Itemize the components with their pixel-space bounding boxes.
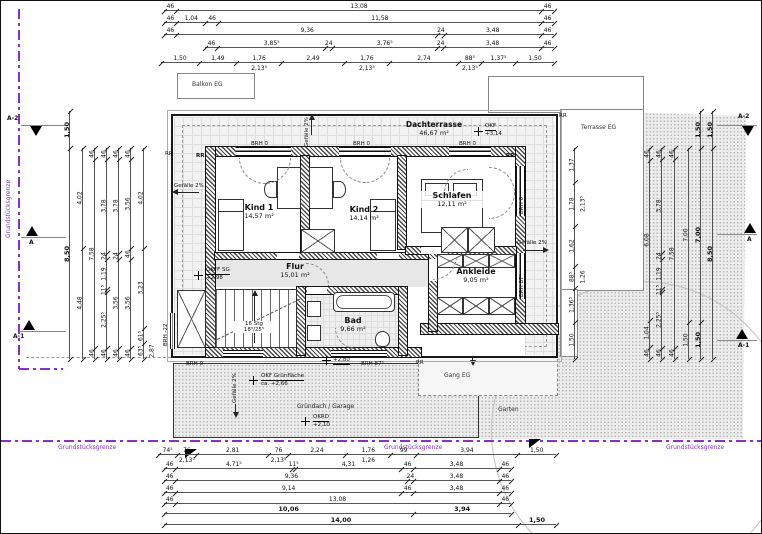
dim-tick <box>161 511 167 517</box>
wardrobe <box>437 297 463 315</box>
dim-tick <box>80 245 86 251</box>
dim-tick <box>174 32 180 38</box>
dim-tick <box>158 60 164 66</box>
dim-tick <box>155 452 161 458</box>
dim-label: 46 <box>644 349 651 357</box>
room-name: Kind 2 <box>331 205 397 214</box>
dim-label: 61⁵ <box>138 331 145 341</box>
dim-label: 1,50 <box>694 332 702 348</box>
dim-label: 46 <box>501 485 509 492</box>
wall <box>421 324 558 334</box>
level-value: ca. +2,66 <box>261 381 288 387</box>
dim-label: 46 <box>166 473 174 480</box>
dim-label: 1,04 <box>185 15 198 22</box>
section-line <box>19 331 66 332</box>
window <box>449 147 491 156</box>
dim-tick <box>414 452 420 458</box>
dachterrasse-name: Dachterrasse <box>399 120 469 129</box>
dim-tick <box>411 511 417 517</box>
dimension-row: 464,71⁵11⁵4,31463,4846 <box>164 468 511 469</box>
slope-arrow-line <box>523 250 543 251</box>
dim-label: 4,02 <box>138 191 145 204</box>
dim-tick <box>104 157 110 163</box>
dim-label: 2,13⁵ <box>179 457 195 464</box>
dim-label: 4,71⁵ <box>226 461 242 468</box>
dim-label: 3,48 <box>450 485 463 492</box>
terrasse-eg-area <box>488 76 644 113</box>
dimension-row: 1,501,491,762,13⁵2,491,762,13⁵2,7488⁵2,1… <box>161 62 554 63</box>
section-label-a2: A-2 <box>738 113 749 120</box>
brh-label: BRH 0 <box>251 141 268 147</box>
dim-tick <box>456 60 462 66</box>
dim-tick <box>551 20 557 26</box>
dim-tick <box>128 357 134 363</box>
dim-label: 24 <box>437 40 445 47</box>
dim-label: 9,36 <box>285 473 298 480</box>
room-label-kind2: Kind 2 14,14 m² <box>331 205 397 222</box>
dim-tick <box>104 357 110 363</box>
dim-tick <box>215 45 221 51</box>
dim-label: 46 <box>167 15 175 22</box>
level-label: OKRD <box>313 414 329 422</box>
brh-label: BRH 87⁵ <box>519 274 525 297</box>
closet <box>177 290 206 348</box>
section-label-a1: A-1 <box>13 333 24 340</box>
room-area: 9,66 m² <box>331 325 375 333</box>
dim-tick <box>141 146 147 152</box>
dimension-row: 4613,0846 <box>164 10 554 11</box>
room-label-ankleide: Ankleide 9,05 m² <box>438 267 514 284</box>
dim-tick <box>551 32 557 38</box>
door-gap <box>277 253 299 259</box>
dim-label: 3,78 <box>113 200 120 213</box>
dim-label: 8,50 <box>706 246 714 262</box>
room-name: Flur <box>266 262 324 271</box>
room-area: 14,57 m² <box>219 212 299 220</box>
slope-label: Gefälle 2% <box>174 183 204 189</box>
dim-label: 6,08 <box>644 233 651 246</box>
bathtub-inner <box>336 295 392 309</box>
dim-tick <box>343 452 349 458</box>
dim-tick <box>92 357 98 363</box>
dimension-row: 461,044611,5846 <box>164 22 554 23</box>
rr-label: RR <box>559 113 567 119</box>
dim-label: 46 <box>166 496 174 503</box>
dim-label: 46 <box>656 150 663 158</box>
wall <box>398 156 406 249</box>
dim-label: 1,19 <box>101 267 108 280</box>
dimension-chain: 4,024,48 <box>82 148 83 359</box>
dimension-chain: 463,56463,5646 <box>130 148 131 359</box>
dim-label: 46 <box>501 461 509 468</box>
dim-tick <box>80 146 86 152</box>
dim-label: 1,78 <box>569 197 576 210</box>
slope-left-arrow-icon <box>172 189 178 195</box>
property-line-left-stub <box>19 368 63 370</box>
dim-label: 46 <box>167 27 175 34</box>
dim-label: 3,23 <box>138 281 145 294</box>
dim-label: 46 <box>544 15 552 22</box>
wardrobe <box>489 297 515 315</box>
dim-label: 1,50 <box>529 516 545 524</box>
level-value: +2,80 <box>333 357 350 365</box>
dim-label: 24 <box>101 252 108 260</box>
dim-label: 3,94 <box>454 505 470 513</box>
dim-label: 1,49 <box>211 55 224 62</box>
section-label-a2: A-2 <box>7 115 18 122</box>
section-label-a: A <box>747 236 752 243</box>
brh-label: BRH 0 <box>459 141 476 147</box>
dim-label: 3,56 <box>125 297 132 310</box>
dim-label: 2,87 <box>149 344 156 357</box>
dim-label: 1,26 <box>362 457 375 464</box>
dim-label: 3,56 <box>125 197 132 210</box>
dim-label: 11⁵ <box>289 461 299 468</box>
slope-label: Gefälle 2% <box>517 240 547 246</box>
dim-tick <box>67 357 73 363</box>
dim-tick <box>515 522 521 528</box>
room-name: Schlafen <box>419 191 485 200</box>
dim-label: 3,78 <box>101 200 108 213</box>
rr-label: RR <box>506 153 514 159</box>
dim-label: 1,50 <box>569 334 576 347</box>
dim-tick <box>710 109 716 115</box>
dim-label: 1,76 <box>360 55 373 62</box>
dimension-row: 74⁵762,13⁵2,81762,13⁵2,241,761,26993,941… <box>158 454 556 455</box>
level-okrd: OKRD +2,10 <box>313 414 330 428</box>
dimension-chain: 467,5846 <box>674 148 675 359</box>
room-label-bad: Bad 9,66 m² <box>331 316 375 333</box>
dim-label: 46 <box>544 40 552 47</box>
room-label-schlafen: Schlafen 12,11 m² <box>419 191 485 208</box>
dim-label: 10,06 <box>278 505 299 513</box>
dim-label: 24 <box>437 27 445 34</box>
dimension-chain: 7,001,50 <box>688 148 689 359</box>
dim-tick <box>388 452 394 458</box>
toilet <box>375 331 390 347</box>
section-label-a: A <box>29 239 34 246</box>
dim-label: 99 <box>400 447 408 454</box>
dim-tick <box>698 109 704 115</box>
level-label: OKF <box>485 123 496 131</box>
level-marker-icon <box>474 127 483 136</box>
slope-down-arrow-icon <box>233 412 239 418</box>
dim-label: 7,58 <box>669 247 676 260</box>
dim-label: 1,50 <box>683 334 690 347</box>
brh-label: BRH -22 <box>163 324 169 346</box>
dim-label: 14,00 <box>331 516 352 524</box>
wall <box>206 147 215 356</box>
room-name: Kind 1 <box>219 203 299 212</box>
slope-up-arrow-icon <box>309 114 315 120</box>
dimension-chain: 1,507,001,50 <box>700 111 701 359</box>
brh-label: BRH 0 <box>186 361 203 367</box>
room-area: 14,14 m² <box>331 214 397 222</box>
room-area: 15,01 m² <box>266 271 324 279</box>
room-name: Bad <box>331 316 375 325</box>
level-marker-icon <box>194 271 203 280</box>
brh-label: BRH 87⁵ <box>361 361 384 367</box>
dim-label: 7,00 <box>683 228 690 241</box>
level-value: +2,10 <box>313 422 330 428</box>
dim-label: 46 <box>656 349 663 357</box>
dim-tick <box>128 157 134 163</box>
dim-tick <box>141 357 147 363</box>
section-arrow-icon <box>30 126 42 136</box>
rr-label: RR <box>165 151 173 157</box>
level-value: +3,14 <box>485 131 502 137</box>
wall <box>297 287 305 355</box>
dim-label: 46 <box>669 349 676 357</box>
dim-label: 11⁵ <box>656 285 663 295</box>
dim-label: 46 <box>89 150 96 158</box>
terrasse-eg-label: Terrasse EG <box>581 124 616 131</box>
dim-label: 1,04 <box>644 327 651 340</box>
dimension-row: 469,36243,4846 <box>164 34 554 35</box>
dim-label: 46 <box>501 473 509 480</box>
section-line <box>21 237 66 238</box>
dim-label: 4,02 <box>77 191 84 204</box>
dimension-chain: 1,371,782,13⁵1,6288⁵1,261,36⁵1,50 <box>574 148 575 359</box>
dim-label: 2,13⁵ <box>251 65 267 72</box>
dimension-row: 10,063,94 <box>164 513 511 514</box>
door-gap <box>307 287 327 294</box>
gang-eg-label: Gang EG <box>444 372 470 379</box>
dim-label: 24 <box>656 252 663 260</box>
dim-label: 76 <box>183 447 191 454</box>
dim-label: 4,48 <box>77 297 84 310</box>
room-label-kind1: Kind 1 14,57 m² <box>219 203 299 220</box>
stairs-label: 16 Stg 18⁵/25⁵ <box>233 321 275 333</box>
dim-tick <box>141 245 147 251</box>
brh-label: BRH 0 <box>519 197 525 214</box>
dim-label: 2,13⁵ <box>271 457 287 464</box>
dim-label: 7,58 <box>89 247 96 260</box>
dim-label: 2,74 <box>417 55 430 62</box>
dachterrasse-area: 46,67 m² <box>399 129 469 137</box>
dim-label: 2,81 <box>226 447 239 454</box>
dim-label: 46 <box>166 485 174 492</box>
room-label-flur: Flur 15,01 m² <box>266 262 324 279</box>
dim-label: 46 <box>113 349 120 357</box>
dim-label: 1,76 <box>362 447 375 454</box>
dim-tick <box>216 20 222 26</box>
stairs-up-arrow-icon <box>252 290 258 296</box>
dimension-chain: 467,5846 <box>94 148 95 359</box>
dimension-row: 469,36243,4846 <box>164 480 511 481</box>
dim-label: 46 <box>404 485 412 492</box>
dim-tick <box>386 60 392 66</box>
dim-label: 24 <box>113 252 120 260</box>
dimension-chain: 466,081,0446 <box>649 148 650 359</box>
dim-label: 46 <box>166 461 174 468</box>
level-marker-icon <box>322 356 331 365</box>
rr-label: RR <box>196 153 204 159</box>
dim-label: 1,36⁵ <box>569 297 576 313</box>
door-gap <box>377 253 399 259</box>
dim-label: 46 <box>208 40 216 47</box>
dim-label: 2,25⁵ <box>101 312 108 328</box>
dimension-chain: 1,508,50 <box>712 111 713 359</box>
dim-label: 3,48 <box>486 40 499 47</box>
dim-label: 13,08 <box>329 496 346 503</box>
dim-label: 24 <box>325 40 333 47</box>
rr-label: RR <box>416 360 424 366</box>
gruendach-label: Gründach / Garage <box>297 403 354 410</box>
property-line-label: Grundstücksgrenze <box>384 444 442 451</box>
section-arrow-icon <box>23 320 35 330</box>
dim-tick <box>67 146 73 152</box>
dim-label: 2,24 <box>310 447 323 454</box>
dim-tick <box>196 60 202 66</box>
dim-label: 46 <box>101 349 108 357</box>
dim-label: 46 <box>501 496 509 503</box>
level-okf: OKF +3,14 <box>485 123 502 137</box>
dim-label: 1,19 <box>656 267 663 280</box>
dimension-chain: 463,78241,1911⁵2,25⁵46 <box>106 148 107 359</box>
dim-tick <box>174 20 180 26</box>
dim-label: 2,13⁵ <box>359 65 375 72</box>
slope-arrow-line <box>311 119 312 135</box>
dim-tick <box>161 522 167 528</box>
sink <box>307 325 321 341</box>
dimension-chain: 463,78243,5646 <box>118 148 119 359</box>
room-area: 9,05 m² <box>438 276 514 284</box>
dim-tick <box>342 60 348 66</box>
property-line-left <box>18 9 20 369</box>
dim-label: 46 <box>644 150 651 158</box>
level-marker-icon <box>249 376 258 385</box>
dim-label: 46 <box>669 150 676 158</box>
balkon-eg-label: Balkon EG <box>192 81 223 88</box>
dachterrasse-label: Dachterrasse 46,67 m² <box>399 120 469 137</box>
level-gruenflaeche: OKF Grünfläche ca. +2,66 <box>261 373 304 387</box>
slope-label: Gefälle 2% <box>232 373 238 403</box>
dim-label: 1,50 <box>530 447 543 454</box>
section-line <box>717 340 757 341</box>
dim-label: 11⁵ <box>101 285 108 295</box>
section-arrow-icon <box>26 226 38 236</box>
sink <box>307 301 321 317</box>
dim-label: 3,76⁵ <box>377 40 393 47</box>
level-okffsg: OKFF SG +2,98 <box>206 267 230 281</box>
dim-label: 46 <box>101 150 108 158</box>
dim-label: 3,48 <box>450 461 463 468</box>
dim-label: 1,50 <box>694 122 702 138</box>
dimension-row: 463,85⁵243,76⁵243,4846 <box>205 47 554 48</box>
level-label: OKF Grünfläche <box>261 373 304 381</box>
dim-tick <box>508 511 514 517</box>
dim-label: 2,13⁵ <box>580 196 587 212</box>
dim-label: 46 <box>113 150 120 158</box>
wardrobe <box>468 227 495 253</box>
wardrobe <box>463 297 489 315</box>
dim-label: 46 <box>125 250 132 258</box>
dim-label: 9,14 <box>282 485 295 492</box>
dim-tick <box>513 60 519 66</box>
dim-label: 88⁵ <box>569 272 576 282</box>
dim-tick <box>116 157 122 163</box>
property-line-bottom <box>1 440 762 442</box>
brh-label: BRH 0 <box>353 141 370 147</box>
dimension-chain: 4,023,2361⁵63⁵2,87 <box>143 148 144 359</box>
wardrobe <box>301 229 335 253</box>
dim-tick <box>279 60 285 66</box>
dimension-row: 469,14463,4846 <box>164 492 511 493</box>
dim-label: 3,48 <box>450 473 463 480</box>
level-door: +2,80 <box>333 357 350 365</box>
room-name: Ankleide <box>438 267 514 276</box>
level-label: OKFF SG <box>206 267 230 275</box>
dim-tick <box>551 8 557 14</box>
section-label-a1: A-1 <box>738 342 749 349</box>
dim-label: 13,08 <box>350 3 367 10</box>
dim-tick <box>551 60 557 66</box>
dim-label: 1,50 <box>528 55 541 62</box>
dim-tick <box>478 60 484 66</box>
stairs-rise-run: 18⁵/25⁵ <box>233 327 275 333</box>
slope-arrow-line <box>235 404 236 412</box>
dim-label: 2,13⁵ <box>462 65 478 72</box>
property-line-label: Grundstücksgrenze <box>666 444 724 451</box>
dim-label: 76 <box>275 447 283 454</box>
wardrobe <box>489 254 515 268</box>
level-value: +2,98 <box>206 275 223 281</box>
wardrobe <box>441 227 468 253</box>
dim-label: 63⁵ <box>138 346 145 356</box>
garten-label: Garten <box>498 406 519 413</box>
dim-label: 46 <box>167 3 175 10</box>
dim-label: 8,50 <box>63 246 71 262</box>
dim-label: 46 <box>544 3 552 10</box>
dimension-row: 14,001,50 <box>164 524 556 525</box>
dimension-row: 4613,0846 <box>164 503 511 504</box>
dim-label: 2,25⁵ <box>656 312 663 328</box>
room-area: 12,11 m² <box>419 200 485 208</box>
dim-tick <box>551 45 557 51</box>
section-arrow-icon <box>744 223 756 233</box>
dimension-chain: 463,78241,1911⁵2,25⁵46 <box>661 148 662 359</box>
dim-label: 1,26 <box>580 270 587 283</box>
dim-label: 9,36 <box>300 27 313 34</box>
wardrobe <box>463 254 489 268</box>
dim-label: 1,37⁵ <box>491 55 507 62</box>
dim-label: 46 <box>125 150 132 158</box>
dim-label: 88⁵ <box>465 55 475 62</box>
dim-label: 1,50 <box>706 122 714 138</box>
section-line <box>717 234 757 235</box>
slope-arrow-line <box>177 192 199 193</box>
dim-label: 7,00 <box>694 227 702 243</box>
dim-label: 4,31 <box>342 461 355 468</box>
level-marker-icon <box>301 417 310 426</box>
property-line-label: Grundstücksgrenze <box>6 180 12 238</box>
dim-tick <box>174 8 180 14</box>
dim-label: 46 <box>404 461 412 468</box>
window <box>223 350 263 357</box>
dim-tick <box>80 357 86 363</box>
dim-label: 46 <box>208 15 216 22</box>
section-arrow-icon <box>742 126 754 136</box>
dim-tick <box>234 60 240 66</box>
dimension-chain: 1,508,50 <box>69 111 70 359</box>
slope-label: Gefälle 2% <box>304 117 310 147</box>
dim-label: 46 <box>544 27 552 34</box>
dim-label: 3,48 <box>486 27 499 34</box>
dim-label: 1,37 <box>569 158 576 171</box>
dim-label: 1,50 <box>173 55 186 62</box>
dim-label: 46 <box>125 349 132 357</box>
